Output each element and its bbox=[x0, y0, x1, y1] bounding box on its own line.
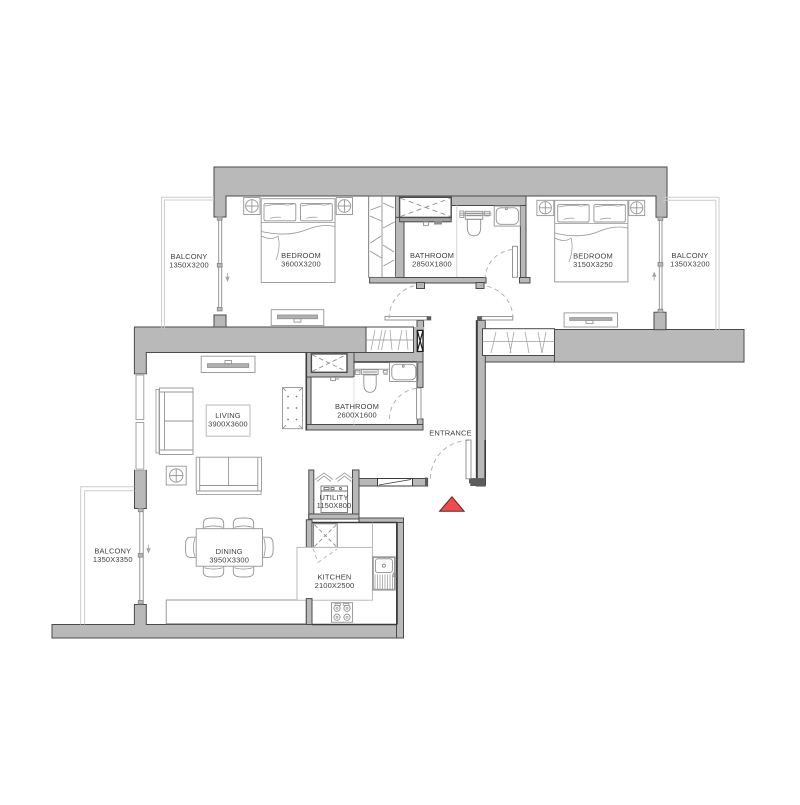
svg-text:2850X1800: 2850X1800 bbox=[412, 259, 452, 268]
svg-text:2600X1600: 2600X1600 bbox=[337, 411, 377, 420]
svg-text:3900X3600: 3900X3600 bbox=[208, 419, 248, 428]
svg-text:1350X3200: 1350X3200 bbox=[169, 260, 209, 269]
svg-text:3600X3200: 3600X3200 bbox=[281, 259, 321, 268]
svg-text:1150X800: 1150X800 bbox=[317, 501, 352, 510]
svg-text:1350X3350: 1350X3350 bbox=[93, 555, 133, 564]
svg-text:ENTRANCE: ENTRANCE bbox=[429, 429, 471, 438]
svg-text:1350X3200: 1350X3200 bbox=[670, 259, 710, 268]
svg-text:3150X3250: 3150X3250 bbox=[573, 260, 613, 269]
svg-text:2100X2500: 2100X2500 bbox=[315, 581, 355, 590]
svg-text:3950X3300: 3950X3300 bbox=[209, 555, 249, 564]
